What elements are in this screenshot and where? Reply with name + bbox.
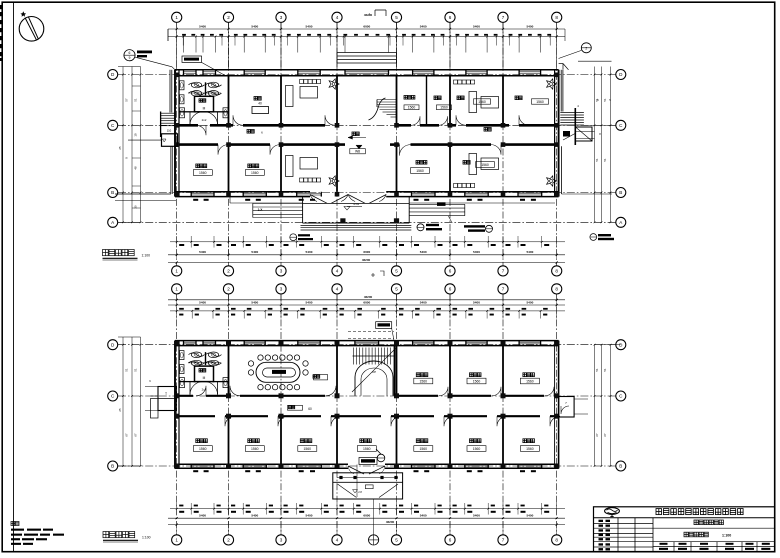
svg-text:1560: 1560 — [420, 447, 428, 451]
svg-text:T: T — [165, 392, 167, 396]
svg-text:2: 2 — [227, 15, 230, 20]
svg-text:2: 2 — [227, 538, 230, 543]
svg-text:7: 7 — [502, 287, 505, 292]
svg-text:5400: 5400 — [526, 300, 533, 304]
svg-text:2: 2 — [585, 47, 587, 51]
svg-text:-0.02: -0.02 — [353, 202, 360, 206]
svg-text:4: 4 — [336, 538, 339, 543]
svg-text:40: 40 — [258, 102, 262, 106]
svg-text:67: 67 — [603, 433, 607, 437]
svg-text:1: 1 — [175, 269, 178, 274]
svg-text:6: 6 — [449, 269, 452, 274]
svg-text:1: 1 — [175, 15, 178, 20]
svg-text:51: 51 — [133, 98, 137, 102]
svg-text:6: 6 — [449, 15, 452, 20]
svg-text:4: 4 — [336, 15, 339, 20]
svg-text:5400: 5400 — [306, 300, 313, 304]
svg-text:1560: 1560 — [199, 447, 207, 451]
svg-text:5400: 5400 — [306, 250, 313, 254]
svg-text:57: 57 — [125, 98, 129, 102]
svg-text:5400: 5400 — [251, 514, 258, 518]
svg-text:5400: 5400 — [306, 514, 313, 518]
svg-text:1:100: 1:100 — [142, 536, 151, 540]
svg-text:5400: 5400 — [199, 25, 206, 29]
svg-text:6000: 6000 — [363, 250, 370, 254]
svg-text:5400: 5400 — [251, 25, 258, 29]
svg-text:2: 2 — [227, 287, 230, 292]
svg-text:5400: 5400 — [420, 514, 427, 518]
svg-text:5400: 5400 — [199, 250, 206, 254]
svg-text:M: M — [203, 106, 206, 110]
svg-text:3: 3 — [280, 269, 283, 274]
svg-text:5400: 5400 — [306, 25, 313, 29]
svg-text:2.8: 2.8 — [358, 490, 362, 494]
svg-text:5: 5 — [395, 15, 398, 20]
svg-text:5400: 5400 — [473, 300, 480, 304]
svg-text:51: 51 — [125, 368, 129, 372]
svg-text:1560: 1560 — [526, 379, 534, 383]
svg-text:1:100: 1:100 — [142, 254, 151, 258]
svg-text:5: 5 — [395, 538, 398, 543]
svg-text:5: 5 — [395, 287, 398, 292]
svg-text:1560: 1560 — [304, 447, 312, 451]
svg-text:1560: 1560 — [363, 447, 371, 451]
svg-text:46200: 46200 — [362, 258, 371, 262]
svg-text:5400: 5400 — [526, 514, 533, 518]
svg-text:3: 3 — [280, 538, 283, 543]
svg-text:1560: 1560 — [416, 169, 424, 173]
svg-text:5: 5 — [395, 269, 398, 274]
svg-text:1560: 1560 — [481, 163, 489, 167]
svg-text:67: 67 — [133, 433, 137, 437]
svg-text:UP: UP — [372, 370, 376, 374]
svg-text:4: 4 — [336, 269, 339, 274]
svg-text:51: 51 — [603, 158, 607, 162]
svg-text:51: 51 — [603, 98, 607, 102]
svg-text:2: 2 — [227, 269, 230, 274]
svg-text:1560: 1560 — [473, 447, 481, 451]
svg-text:51: 51 — [595, 158, 599, 162]
svg-text:1560: 1560 — [526, 447, 534, 451]
svg-text:51: 51 — [133, 368, 137, 372]
svg-text:110: 110 — [167, 129, 172, 133]
svg-text:46200: 46200 — [386, 520, 395, 524]
svg-text:8: 8 — [555, 15, 558, 20]
svg-text:5400: 5400 — [199, 514, 206, 518]
svg-text:1560: 1560 — [440, 106, 448, 110]
svg-text:1: 1 — [175, 287, 178, 292]
svg-text:6: 6 — [449, 538, 452, 543]
svg-text:1560: 1560 — [251, 447, 259, 451]
svg-text:6000: 6000 — [363, 25, 370, 29]
svg-text:1: 1 — [175, 538, 178, 543]
svg-text:5400: 5400 — [526, 250, 533, 254]
svg-text:B: B — [619, 190, 622, 195]
svg-text:25: 25 — [118, 408, 122, 412]
svg-text:67: 67 — [595, 433, 599, 437]
svg-text:5400: 5400 — [199, 300, 206, 304]
svg-text:7: 7 — [502, 269, 505, 274]
svg-text:1560: 1560 — [478, 100, 486, 104]
svg-text:6000: 6000 — [363, 514, 370, 518]
svg-text:5400: 5400 — [473, 25, 480, 29]
svg-text:5400: 5400 — [473, 514, 480, 518]
svg-text:B: B — [619, 464, 622, 469]
svg-text:3: 3 — [280, 15, 283, 20]
svg-text:W8: W8 — [355, 150, 360, 154]
svg-text:5400: 5400 — [526, 25, 533, 29]
svg-text:M: M — [203, 376, 206, 380]
svg-text:7: 7 — [502, 15, 505, 20]
svg-text:5400: 5400 — [251, 250, 258, 254]
svg-text:8: 8 — [555, 287, 558, 292]
svg-text:5400: 5400 — [251, 300, 258, 304]
svg-text:2x2: 2x2 — [202, 118, 207, 122]
svg-text:48: 48 — [133, 166, 137, 170]
svg-text:25: 25 — [118, 146, 122, 150]
svg-text:8: 8 — [555, 538, 558, 543]
svg-text:J: J — [368, 13, 370, 17]
svg-text:B: B — [111, 464, 114, 469]
svg-text:51: 51 — [595, 368, 599, 372]
svg-text:1:100: 1:100 — [722, 534, 731, 538]
svg-text:1560: 1560 — [251, 171, 259, 175]
svg-text:4: 4 — [336, 287, 339, 292]
svg-text:1:X: 1:X — [258, 208, 263, 212]
svg-text:60: 60 — [308, 407, 312, 411]
svg-text:51: 51 — [603, 368, 607, 372]
svg-text:8: 8 — [555, 269, 558, 274]
svg-text:19: 19 — [133, 133, 137, 137]
svg-text:1560: 1560 — [408, 106, 416, 110]
svg-text:46200: 46200 — [364, 295, 373, 299]
svg-text:9: 9 — [129, 56, 131, 60]
svg-text:1560: 1560 — [199, 171, 207, 175]
svg-text:5400: 5400 — [420, 25, 427, 29]
svg-text:67: 67 — [125, 433, 129, 437]
svg-text:6: 6 — [129, 51, 131, 55]
svg-text:2x2: 2x2 — [202, 388, 207, 392]
svg-text:5400: 5400 — [420, 300, 427, 304]
svg-text:6000: 6000 — [363, 300, 370, 304]
svg-text:5400: 5400 — [420, 250, 427, 254]
svg-text:1560: 1560 — [473, 379, 481, 383]
svg-text:7: 7 — [502, 538, 505, 543]
svg-text:B: B — [111, 190, 114, 195]
svg-text:1560: 1560 — [536, 100, 544, 104]
svg-text:6: 6 — [449, 287, 452, 292]
svg-text:3: 3 — [280, 287, 283, 292]
svg-text:1560: 1560 — [420, 379, 428, 383]
svg-text:5400: 5400 — [473, 250, 480, 254]
